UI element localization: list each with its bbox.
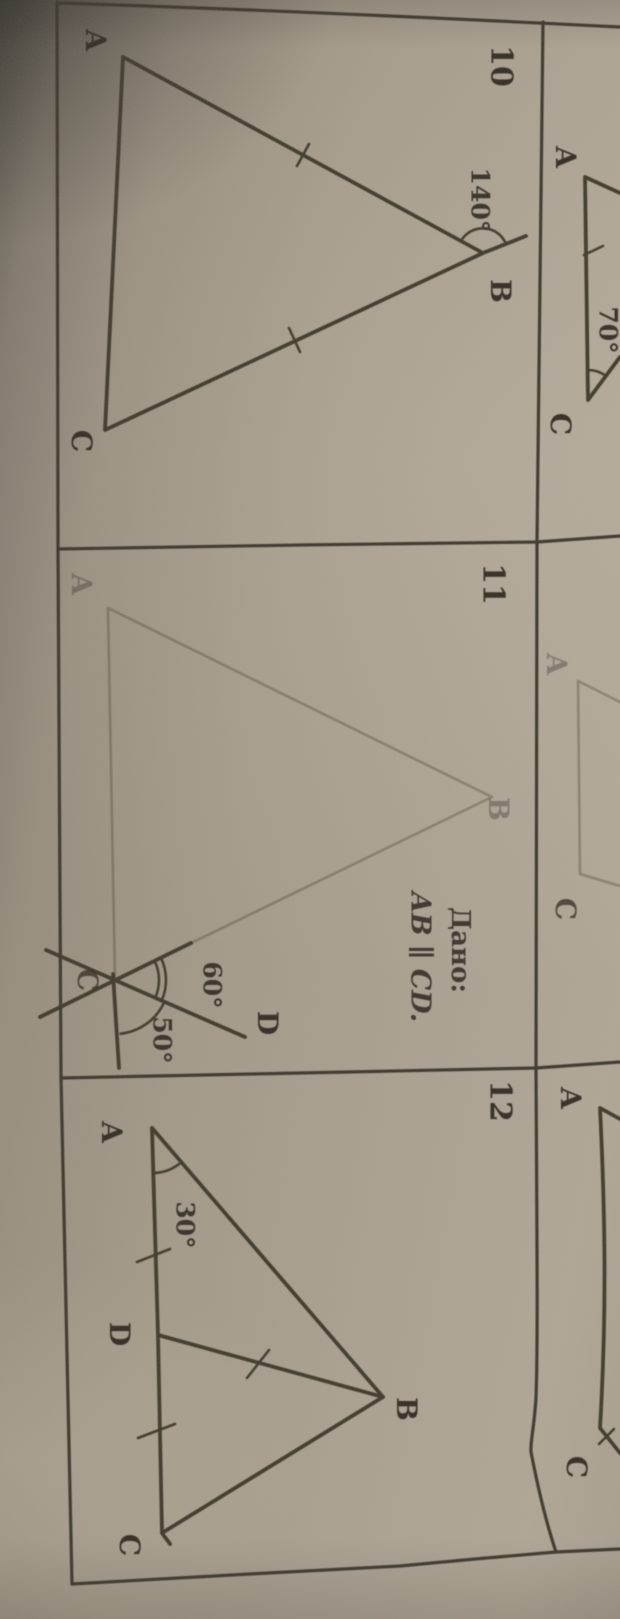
rc-top-vertex-c-label: C <box>544 413 577 435</box>
p11-angle-arc-60-outer <box>161 958 166 1001</box>
geometry-problems-table: 10 A 140° B C 11 A B C 60° 50° D Дано: A… <box>0 0 620 1619</box>
p10-vertex-a-label: A <box>79 28 112 52</box>
right-column-partial-middle: A C <box>540 652 620 920</box>
table-border-left <box>57 2 72 1584</box>
p12-angle-arc-a <box>153 1162 181 1173</box>
rc-bot-triangle-partial <box>600 1108 620 1453</box>
rc-top-triangle-partial <box>585 177 620 400</box>
p12-vertex-b-label: B <box>390 1397 423 1421</box>
problem-10-figure: 10 A 140° B C <box>65 28 526 452</box>
p10-triangle-abc <box>105 57 483 430</box>
p12-tick-ad <box>137 1249 170 1262</box>
column-divider <box>531 22 556 1552</box>
p12-tick-dc <box>138 1424 175 1438</box>
p12-problem-number: 12 <box>483 1080 518 1122</box>
p10-problem-number: 10 <box>484 45 519 87</box>
rc-mid-vertex-c-label: C <box>549 898 582 920</box>
right-column-partial-bottom: A C <box>554 1086 620 1478</box>
p10-vertex-b-label: B <box>484 279 517 303</box>
p12-point-d-label: D <box>103 1322 136 1346</box>
p12-vertex-a-label: A <box>95 1120 128 1144</box>
p12-side-ac <box>152 1128 162 1533</box>
p11-problem-number: 11 <box>476 563 511 605</box>
p12-triangle-abc <box>152 1128 383 1544</box>
textbook-page-photo: 10 A 140° B C 11 A B C 60° 50° D Дано: A… <box>0 0 620 1619</box>
p11-line-ac-extension <box>113 974 119 1068</box>
rc-bot-vertex-a-label: A <box>554 1086 587 1110</box>
rc-mid-vertex-a-label: A <box>540 652 573 676</box>
rc-top-angle-70-label: 70° <box>593 306 620 353</box>
p12-cevian-db <box>158 1335 383 1397</box>
rc-top-vertex-a-label: A <box>549 145 582 169</box>
p12-vertex-c-label: C <box>113 1534 146 1556</box>
p11-vertex-b-label: B <box>482 797 515 821</box>
problem-12-figure: 12 A 30° D B C <box>95 1080 517 1556</box>
rc-top-angle-arc-70 <box>588 370 606 376</box>
problem-11-figure: 11 A B C 60° 50° D Дано: AB ∥ CD. <box>40 563 515 1068</box>
p10-vertex-c-label: C <box>65 430 98 452</box>
p10-angle-140-label: 140° <box>465 168 494 233</box>
rc-bot-vertex-c-label: C <box>560 1456 593 1478</box>
p10-tick-side-ab <box>297 144 309 166</box>
p11-vertex-a-label: A <box>65 572 98 596</box>
p12-angle-30-label: 30° <box>170 1201 199 1248</box>
rc-mid-triangle-partial <box>578 681 620 886</box>
p11-angle-arc-60-inner <box>155 961 159 998</box>
table-border-top <box>57 3 620 27</box>
p11-given-statement: AB ∥ CD. <box>405 889 436 1022</box>
right-column-partial-top: A 70° C <box>544 145 620 435</box>
p11-given-heading: Дано: <box>445 907 475 993</box>
p11-angle-60-label: 60° <box>197 961 226 1008</box>
p11-angle-50-label: 50° <box>147 1016 176 1063</box>
p11-vertex-c-label: C <box>71 969 104 991</box>
table-border-bottom <box>72 1549 620 1584</box>
p11-point-d-label: D <box>251 1011 284 1035</box>
